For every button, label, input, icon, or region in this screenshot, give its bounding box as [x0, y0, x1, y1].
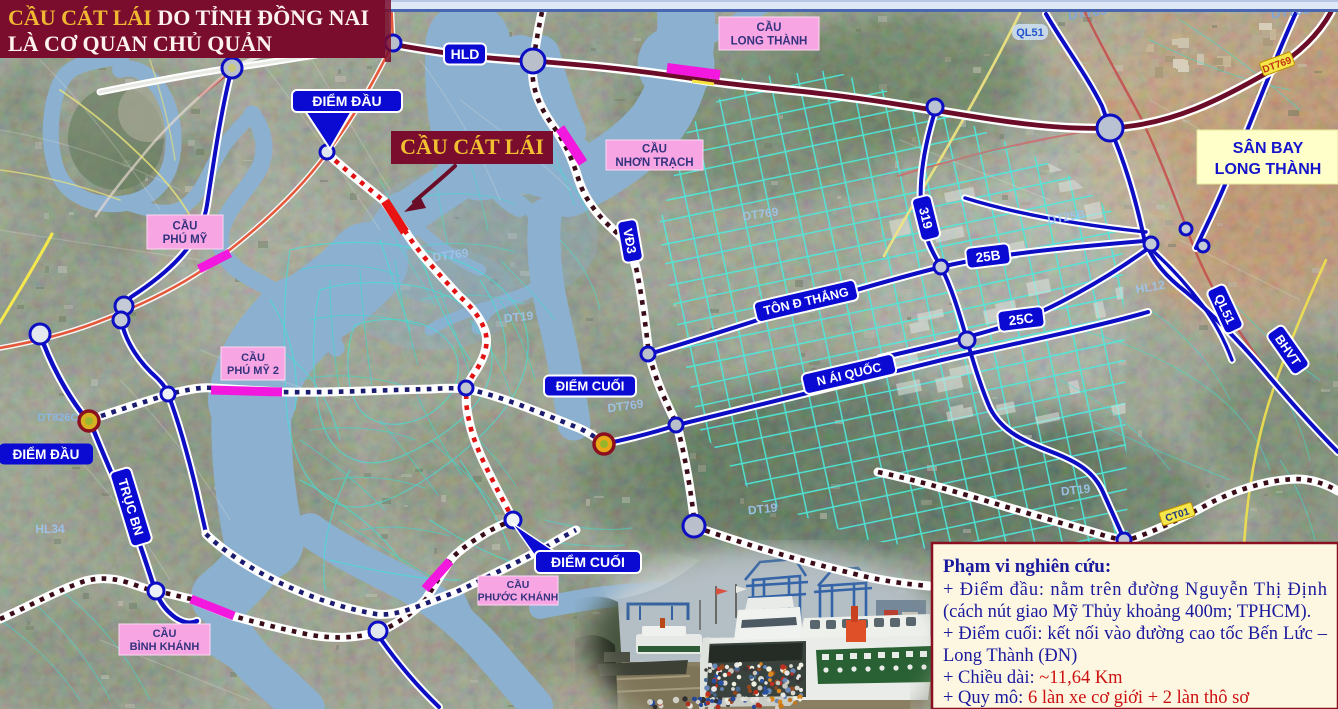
svg-text:SÂN BAY: SÂN BAY — [1233, 138, 1304, 157]
svg-text:HLD: HLD — [451, 46, 480, 62]
svg-text:CẦU: CẦU — [642, 142, 667, 155]
svg-text:CẦU: CẦU — [173, 219, 198, 232]
svg-text:25B: 25B — [975, 247, 1002, 265]
svg-text:PHÚ MỸ: PHÚ MỸ — [163, 233, 208, 246]
svg-text:+ Quy mô: 6 làn xe cơ giới + 2: + Quy mô: 6 làn xe cơ giới + 2 làn thô s… — [943, 688, 1249, 708]
svg-text:CẦU CÁT LÁI: CẦU CÁT LÁI — [400, 134, 544, 159]
svg-text:Long Thành (ĐN): Long Thành (ĐN) — [943, 646, 1077, 666]
svg-text:CẦU: CẦU — [507, 578, 530, 591]
svg-text:ĐIỂM CUỐI: ĐIỂM CUỐI — [551, 553, 625, 570]
svg-text:BÌNH KHÁNH: BÌNH KHÁNH — [130, 640, 200, 653]
svg-text:PHƯỚC KHÁNH: PHƯỚC KHÁNH — [478, 590, 559, 603]
svg-text:CẦU CÁT LÁI DO TỈNH ĐỒNG NAI: CẦU CÁT LÁI DO TỈNH ĐỒNG NAI — [8, 5, 369, 30]
svg-text:QL51: QL51 — [1016, 27, 1044, 39]
svg-text:CẦU: CẦU — [757, 21, 782, 34]
svg-text:ĐIỂM ĐẦU: ĐIỂM ĐẦU — [312, 92, 381, 109]
svg-text:ĐIỂM ĐẦU: ĐIỂM ĐẦU — [13, 447, 80, 462]
svg-text:PHÚ MỸ 2: PHÚ MỸ 2 — [227, 364, 279, 377]
svg-text:CẦU: CẦU — [153, 627, 177, 640]
svg-text:LONG THÀNH: LONG THÀNH — [731, 34, 808, 47]
svg-text:LÀ CƠ QUAN CHỦ QUẢN: LÀ CƠ QUAN CHỦ QUẢN — [8, 31, 272, 56]
svg-text:DT826C: DT826C — [38, 412, 79, 424]
svg-text:+ Chiều dài: ~11,64 Km: + Chiều dài: ~11,64 Km — [943, 668, 1123, 688]
svg-text:25C: 25C — [1008, 310, 1035, 328]
svg-text:+ Điểm đầu: nằm trên đường Ngu: + Điểm đầu: nằm trên đường Nguyễn Thị Đị… — [943, 580, 1327, 600]
svg-text:+ Điểm cuối: kết nối vào đường: + Điểm cuối: kết nối vào đường cao tốc B… — [943, 624, 1328, 644]
svg-text:CẦU: CẦU — [241, 351, 265, 364]
svg-text:LONG THÀNH: LONG THÀNH — [1215, 159, 1322, 178]
svg-text:Phạm vi nghiên cứu:: Phạm vi nghiên cứu: — [943, 556, 1111, 577]
svg-text:ĐIỂM CUỐI: ĐIỂM CUỐI — [556, 379, 625, 394]
svg-text:HL34: HL34 — [35, 522, 65, 536]
svg-text:(cách nút giao Mỹ Thủy khoảng: (cách nút giao Mỹ Thủy khoảng 400m; TPHC… — [943, 602, 1311, 622]
svg-text:NHƠN TRẠCH: NHƠN TRẠCH — [615, 157, 693, 169]
